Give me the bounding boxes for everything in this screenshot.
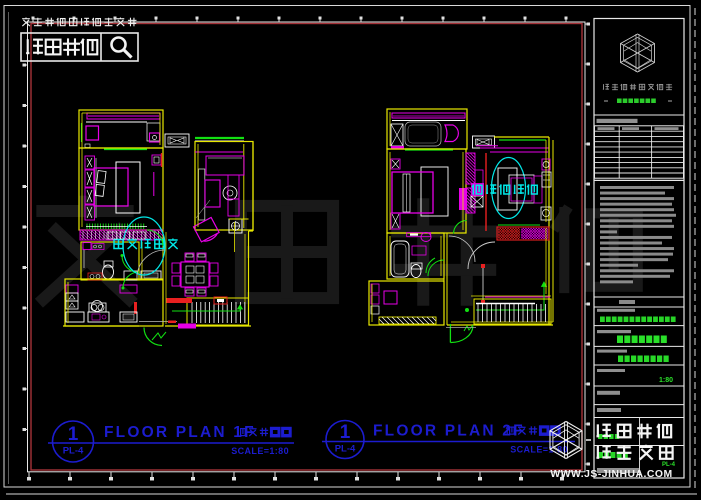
svg-text:WWW.JS-JINHUA.COM: WWW.JS-JINHUA.COM	[550, 469, 672, 480]
svg-text:PL-4: PL-4	[335, 444, 356, 455]
svg-text:1: 1	[340, 422, 351, 443]
svg-text:FLOOR PLAN 1F: FLOOR PLAN 1F	[104, 424, 256, 441]
svg-text:SCALE=1:80: SCALE=1:80	[510, 445, 568, 455]
svg-text:SCALE=1:80: SCALE=1:80	[231, 446, 289, 456]
svg-text:1: 1	[68, 424, 79, 445]
svg-text:PL-4: PL-4	[662, 462, 676, 468]
svg-text:1:80: 1:80	[659, 377, 673, 384]
svg-text:FLOOR PLAN 2F: FLOOR PLAN 2F	[373, 423, 525, 440]
svg-text:PL-4: PL-4	[63, 446, 84, 457]
